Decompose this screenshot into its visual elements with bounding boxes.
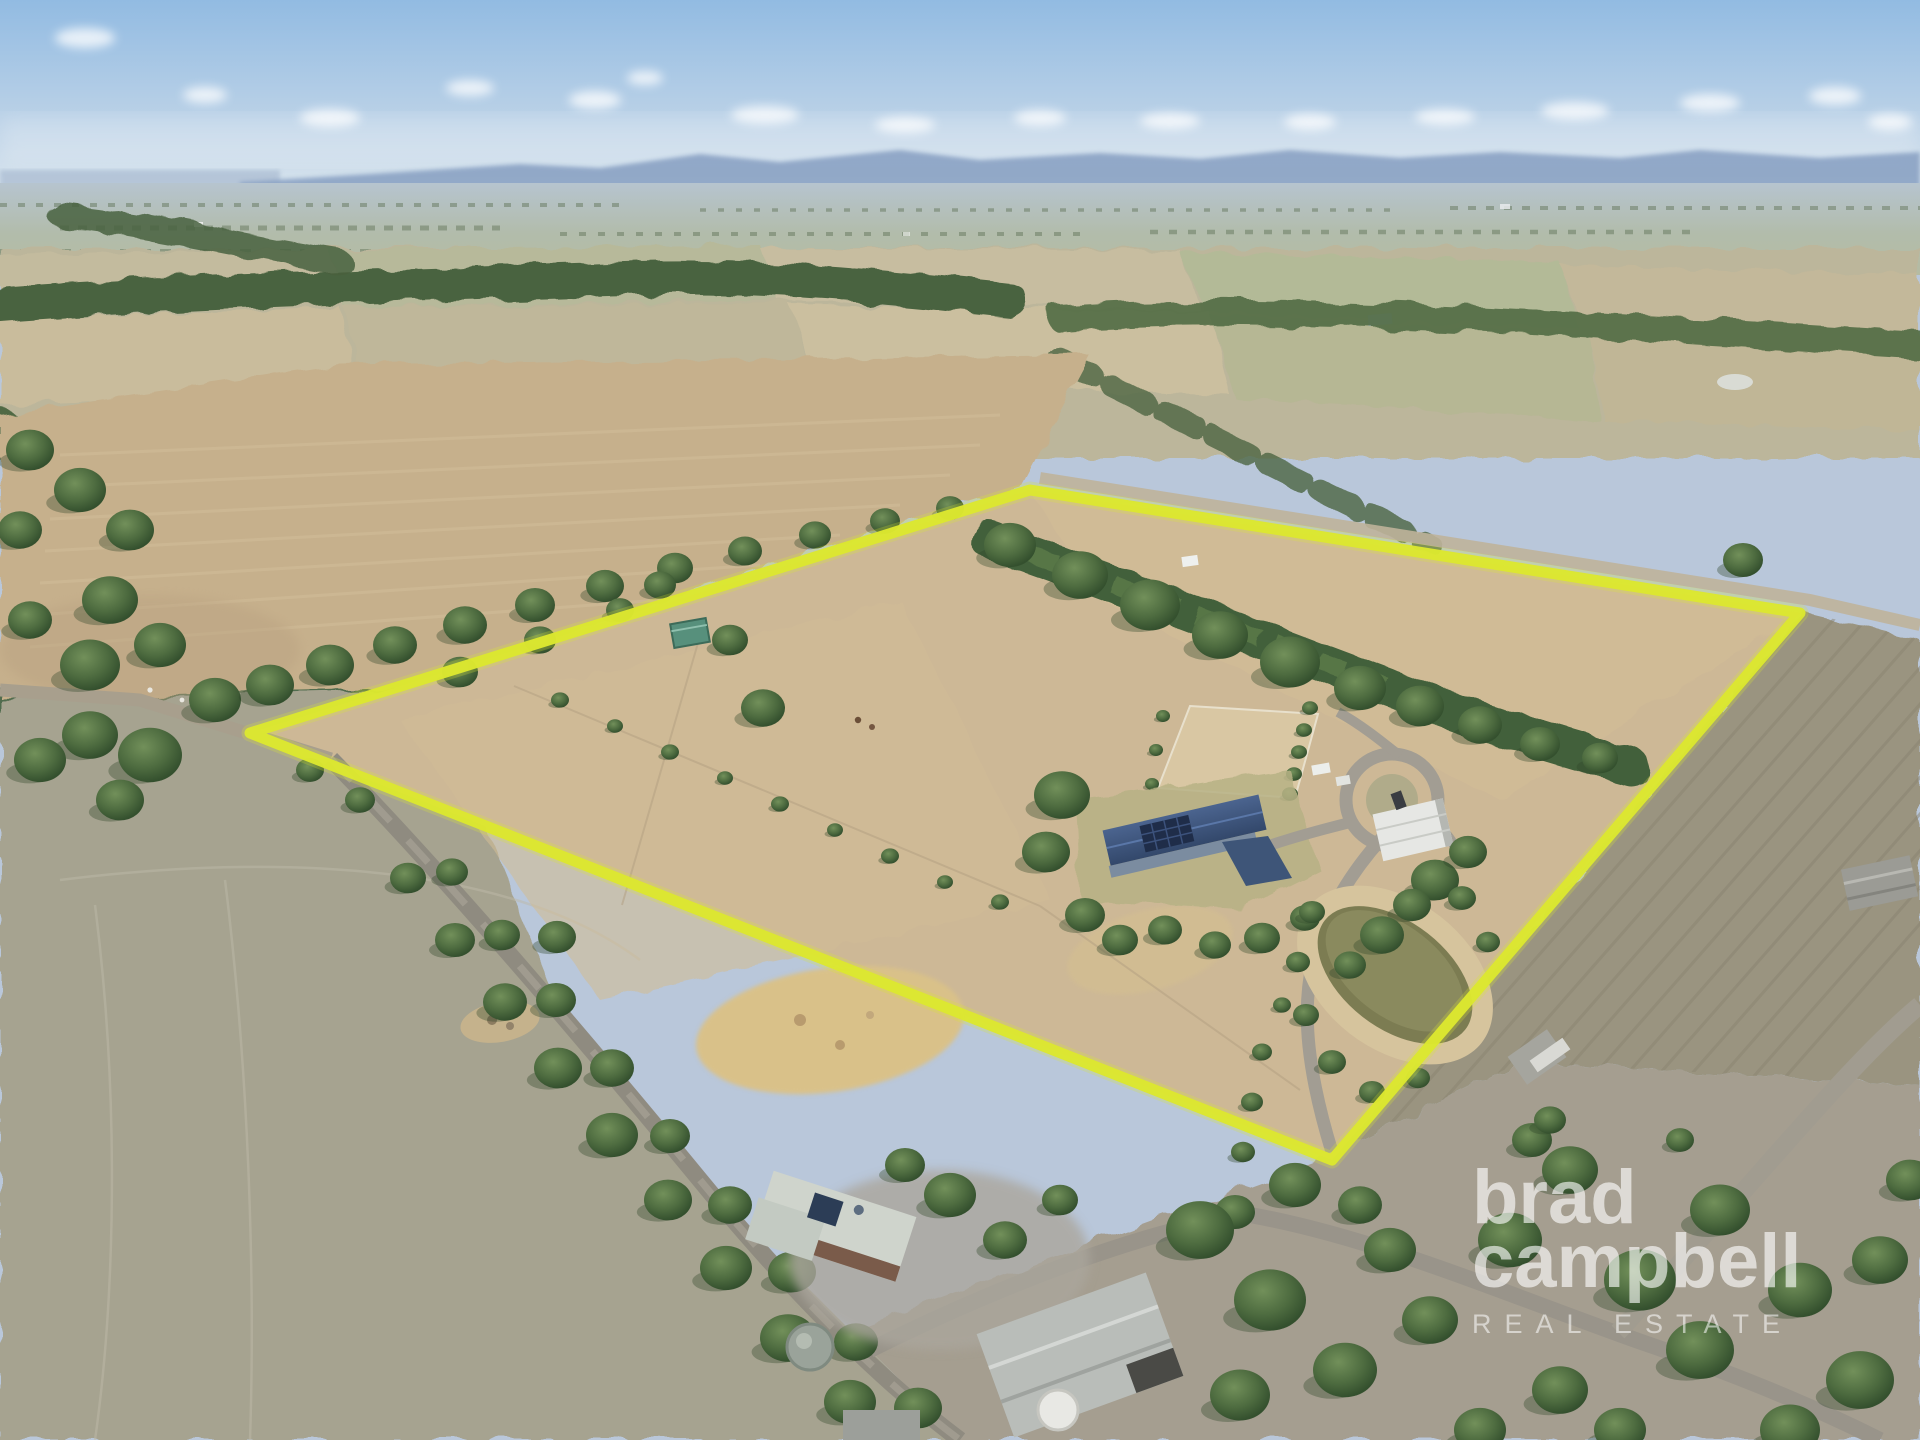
animal-dot (869, 724, 875, 730)
distant-farm-building (1500, 204, 1510, 209)
watermark-tagline: REAL ESTATE (1472, 1309, 1801, 1340)
distant-dam-white (1717, 374, 1753, 390)
sky (0, 0, 1920, 200)
watermark-brand-last-name: campbell (1472, 1230, 1801, 1294)
animal-dot (855, 717, 861, 723)
distant-farm-building (903, 232, 910, 236)
lone-tree (1717, 543, 1763, 578)
watermark-logo: brad campbell REAL ESTATE (1472, 1166, 1801, 1340)
aerial-property-photo: brad campbell REAL ESTATE (0, 0, 1920, 1440)
round-water-tank (787, 1324, 833, 1370)
small-outbuilding (843, 1410, 920, 1440)
white-tank (1038, 1390, 1078, 1430)
livestock-dot (180, 698, 185, 703)
livestock-dot (147, 687, 152, 692)
green-shed (670, 618, 710, 648)
